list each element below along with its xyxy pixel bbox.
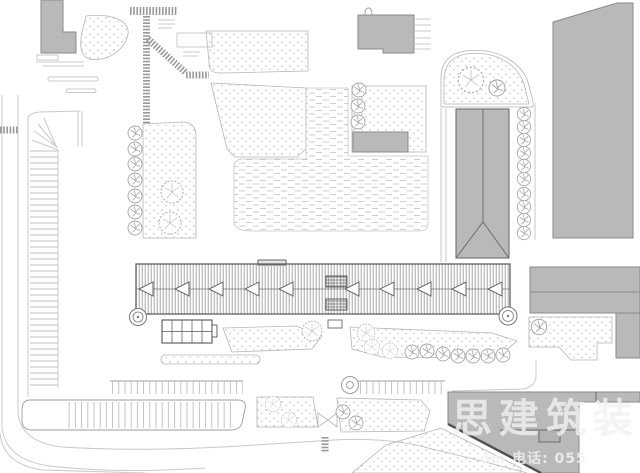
canopy-end-circle-left xyxy=(130,309,147,326)
small-building-mid xyxy=(353,132,408,152)
bed-gable-inner xyxy=(444,53,529,104)
bed-upper-central xyxy=(206,31,308,73)
site-plan-drawing: 思建筑装 om 电话: 055 xyxy=(0,0,640,473)
long-canopy-building xyxy=(130,260,518,343)
building-tall-right xyxy=(553,3,633,238)
site-plan-canvas: 思建筑装 om 电话: 055 xyxy=(0,0,640,473)
manhole-circle xyxy=(342,377,359,394)
parking-stalls-bottom-right xyxy=(358,381,445,394)
watermark-line2: om 电话: 055 xyxy=(480,450,587,467)
bed-top-left-kidney xyxy=(81,15,128,59)
bed-central-trapezoid xyxy=(211,83,306,157)
parking-stalls-bottom-lower xyxy=(66,402,236,428)
canopy-step-south xyxy=(328,320,342,328)
building-top-center-porch xyxy=(365,8,372,15)
building-top-left xyxy=(41,0,76,53)
canopy-stairs-upper xyxy=(326,276,347,287)
canopy-end-circle-right xyxy=(499,307,517,325)
pergola-grid xyxy=(162,320,217,343)
building-top-center xyxy=(358,15,414,53)
parking-stalls-left xyxy=(30,148,58,388)
watermark: 思建筑装 om 电话: 055 xyxy=(452,396,640,467)
parking-stalls-bottom-upper xyxy=(110,381,243,394)
canopy-stairs-lower xyxy=(326,299,347,310)
watermark-line1: 思建筑装 xyxy=(452,396,640,442)
bowtie-marker-right xyxy=(328,413,337,427)
bowtie-marker-left xyxy=(318,413,328,427)
bed-thin-strip xyxy=(161,355,260,364)
